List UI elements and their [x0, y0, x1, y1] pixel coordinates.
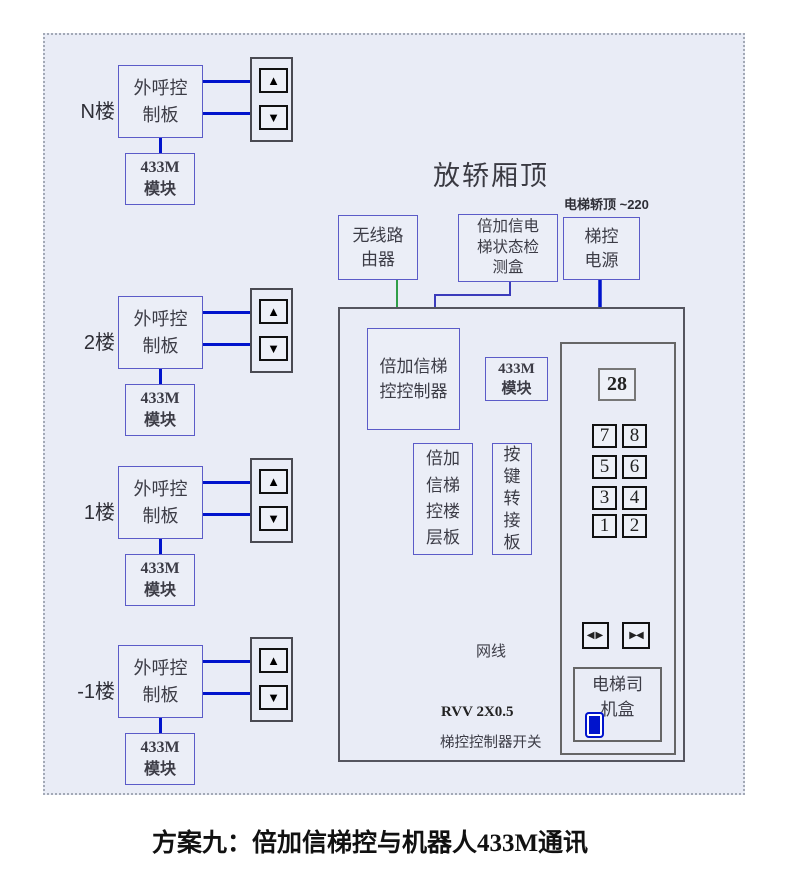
- floor-display-value: 28: [607, 373, 627, 396]
- floor-unit-1: 1楼 外呼控 制板 ▲ ▼ 433M 模块: [55, 458, 295, 610]
- module-433m: 433M 模块: [125, 153, 195, 205]
- down-arrow-icon: ▼: [259, 685, 288, 710]
- diagram-page: N楼 外呼控 制板 ▲ ▼ 433M 模块 2楼 外呼控 制板 ▲ ▼ 433M…: [0, 0, 800, 883]
- up-arrow-icon: ▲: [259, 299, 288, 324]
- wire-board-panel-top: [203, 481, 250, 484]
- floor-label: -1楼: [55, 675, 115, 704]
- floor-display: 28: [598, 368, 636, 401]
- power-note: 电梯轿顶 ~220: [564, 194, 649, 213]
- cop-button-3: 3: [592, 486, 617, 510]
- module-433m: 433M 模块: [125, 554, 195, 606]
- cop-button-1: 1: [592, 514, 617, 538]
- cop-button-7: 7: [592, 424, 617, 448]
- floor-unit-minus1: -1楼 外呼控 制板 ▲ ▼ 433M 模块: [55, 637, 295, 789]
- elevator-controller-box: 倍加信梯 控控制器: [367, 328, 460, 430]
- scene-title: 放轿厢顶: [433, 154, 549, 193]
- call-board: 外呼控 制板: [118, 65, 203, 138]
- wire-board-panel-top: [203, 80, 250, 83]
- caption: 方案九：倍加信梯控与机器人433M通讯: [0, 823, 740, 859]
- hall-button-panel: ▲ ▼: [250, 637, 293, 722]
- wire-board-panel-bottom: [203, 692, 250, 695]
- controller-switch: [585, 712, 604, 738]
- up-arrow-icon: ▲: [259, 469, 288, 494]
- call-board: 外呼控 制板: [118, 466, 203, 539]
- call-board: 外呼控 制板: [118, 645, 203, 718]
- wire-board-panel-top: [203, 311, 250, 314]
- control-power-box: 梯控 电源: [563, 217, 640, 280]
- down-arrow-icon: ▼: [259, 336, 288, 361]
- rvv-cable-label: RVV 2X0.5: [441, 704, 514, 721]
- hall-button-panel: ▲ ▼: [250, 288, 293, 373]
- floor-label: N楼: [55, 95, 115, 124]
- switch-label: 梯控控制器开关: [440, 731, 542, 752]
- floor-unit-2: 2楼 外呼控 制板 ▲ ▼ 433M 模块: [55, 288, 295, 440]
- wire-board-module: [159, 539, 162, 554]
- door-close-icon: ▶◀: [629, 630, 642, 641]
- module-433m: 433M 模块: [125, 384, 195, 436]
- controller-module-433m: 433M 模块: [485, 357, 548, 401]
- cop-button-8: 8: [622, 424, 647, 448]
- cop-button-2: 2: [622, 514, 647, 538]
- wire-board-module: [159, 369, 162, 384]
- up-arrow-icon: ▲: [259, 648, 288, 673]
- door-open-icon: ◀▶: [587, 630, 604, 641]
- cop-button-4: 4: [622, 486, 647, 510]
- module-433m: 433M 模块: [125, 733, 195, 785]
- down-arrow-icon: ▼: [259, 105, 288, 130]
- floor-label: 1楼: [55, 496, 115, 525]
- door-close-button: ▶◀: [622, 622, 650, 649]
- network-cable-label: 网线: [476, 640, 506, 661]
- status-detector-box: 倍加信电 梯状态检 测盒: [458, 214, 558, 282]
- door-open-button: ◀▶: [582, 622, 609, 649]
- floor-board-box: 倍加 信梯 控楼 层板: [413, 443, 473, 555]
- key-adapter-box: 按 键 转 接 板: [492, 443, 532, 555]
- hall-button-panel: ▲ ▼: [250, 57, 293, 142]
- up-arrow-icon: ▲: [259, 68, 288, 93]
- cop-button-6: 6: [622, 455, 647, 479]
- wire-board-panel-bottom: [203, 513, 250, 516]
- wire-board-module: [159, 138, 162, 153]
- wire-board-panel-top: [203, 660, 250, 663]
- floor-label: 2楼: [55, 326, 115, 355]
- wire-board-module: [159, 718, 162, 733]
- down-arrow-icon: ▼: [259, 506, 288, 531]
- call-board: 外呼控 制板: [118, 296, 203, 369]
- wire-board-panel-bottom: [203, 112, 250, 115]
- cop-button-5: 5: [592, 455, 617, 479]
- wire-board-panel-bottom: [203, 343, 250, 346]
- hall-button-panel: ▲ ▼: [250, 458, 293, 543]
- wireless-router-box: 无线路 由器: [338, 215, 418, 280]
- floor-unit-n: N楼 外呼控 制板 ▲ ▼ 433M 模块: [55, 57, 295, 209]
